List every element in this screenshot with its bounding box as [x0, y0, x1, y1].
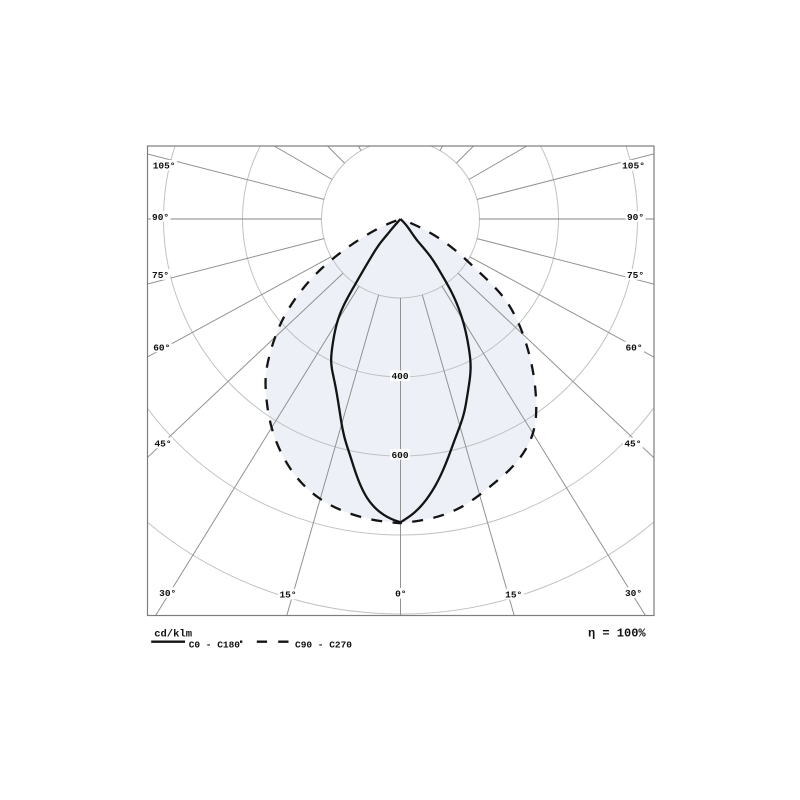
svg-text:600: 600 [391, 450, 408, 461]
svg-text:400: 400 [391, 371, 408, 382]
svg-text:15°: 15° [505, 590, 522, 601]
svg-text:90°: 90° [152, 212, 169, 223]
svg-text:45°: 45° [624, 438, 641, 449]
svg-text:C0 - C180: C0 - C180 [189, 639, 241, 650]
svg-text:45°: 45° [154, 438, 171, 449]
svg-text:30°: 30° [625, 588, 642, 599]
svg-text:105°: 105° [153, 161, 176, 172]
svg-text:0°: 0° [395, 589, 406, 600]
svg-text:15°: 15° [279, 590, 296, 601]
svg-text:75°: 75° [152, 270, 169, 281]
svg-text:30°: 30° [159, 588, 176, 599]
svg-text:C90 - C270: C90 - C270 [295, 639, 352, 650]
svg-text:cd/klm: cd/klm [154, 629, 192, 641]
svg-text:75°: 75° [627, 270, 644, 281]
svg-text:90°: 90° [627, 212, 644, 223]
svg-text:60°: 60° [153, 342, 170, 353]
svg-text:η = 100%: η = 100% [588, 627, 646, 641]
svg-text:105°: 105° [622, 161, 645, 172]
svg-text:60°: 60° [625, 342, 642, 353]
